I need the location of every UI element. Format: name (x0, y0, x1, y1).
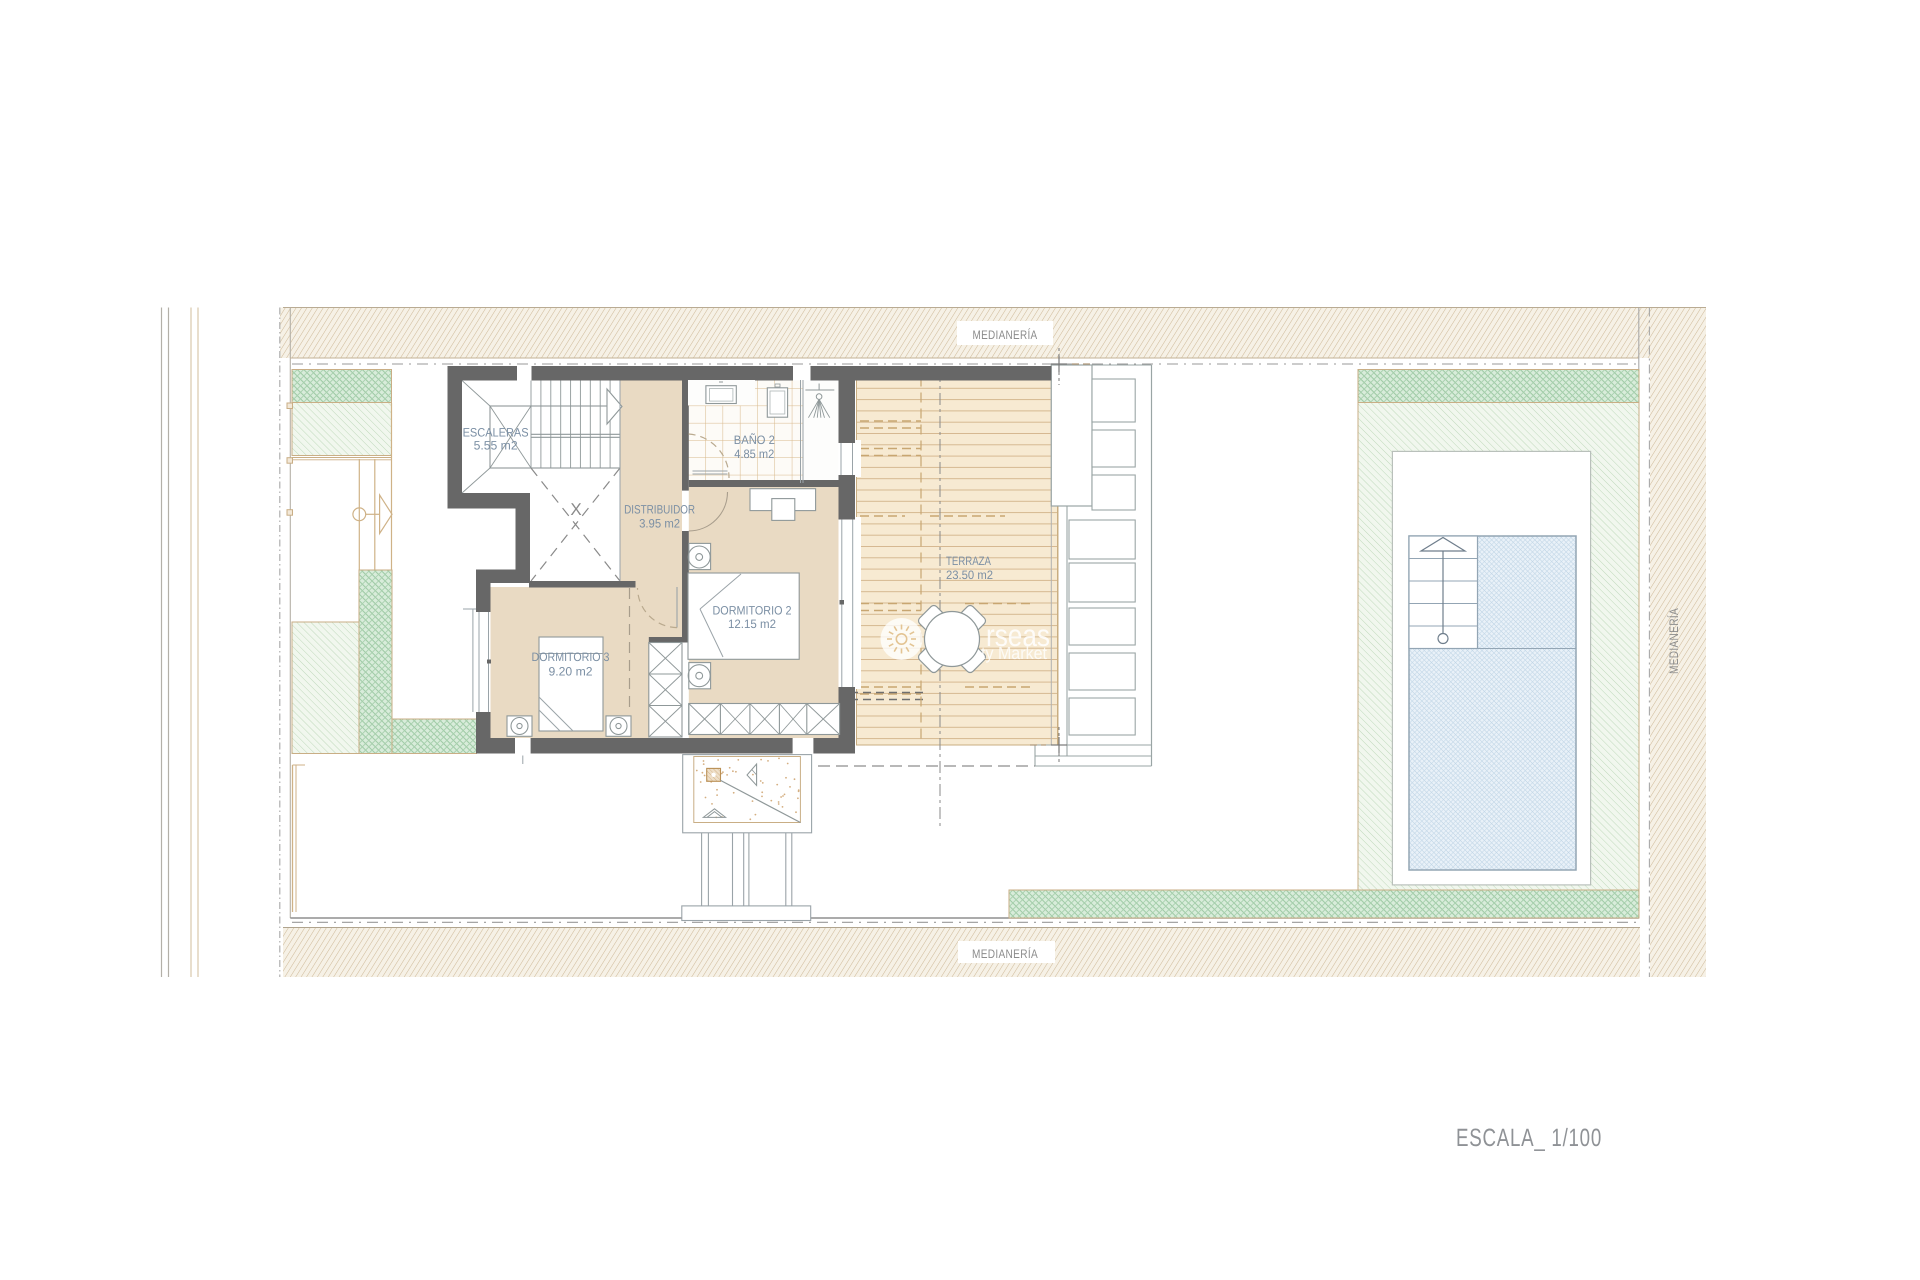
svg-text:MEDIANERÍA: MEDIANERÍA (973, 328, 1038, 342)
svg-text:MEDIANERÍA: MEDIANERÍA (972, 947, 1038, 961)
svg-text:BAÑO 2: BAÑO 2 (734, 433, 775, 447)
svg-text:TERRAZA: TERRAZA (946, 554, 992, 568)
svg-text:ESCALA_ 1/100: ESCALA_ 1/100 (1456, 1124, 1602, 1152)
svg-text:DISTRIBUIDOR: DISTRIBUIDOR (624, 503, 695, 517)
svg-text:3.95 m2: 3.95 m2 (639, 517, 680, 531)
svg-text:4.85 m2: 4.85 m2 (734, 447, 774, 461)
svg-text:MEDIANERÍA: MEDIANERÍA (1667, 608, 1681, 674)
svg-text:X: X (570, 500, 581, 519)
svg-text:9.20 m2: 9.20 m2 (549, 665, 593, 679)
svg-text:ESCALERAS: ESCALERAS (463, 426, 529, 440)
svg-text:DORMITORIO 3: DORMITORIO 3 (532, 650, 610, 664)
svg-text:ty Market: ty Market (981, 643, 1047, 663)
svg-text:23.50 m2: 23.50 m2 (946, 568, 993, 582)
svg-text:DORMITORIO 2: DORMITORIO 2 (713, 604, 792, 618)
svg-text:12.15 m2: 12.15 m2 (728, 617, 776, 631)
svg-text:5.55 m2: 5.55 m2 (474, 439, 518, 453)
